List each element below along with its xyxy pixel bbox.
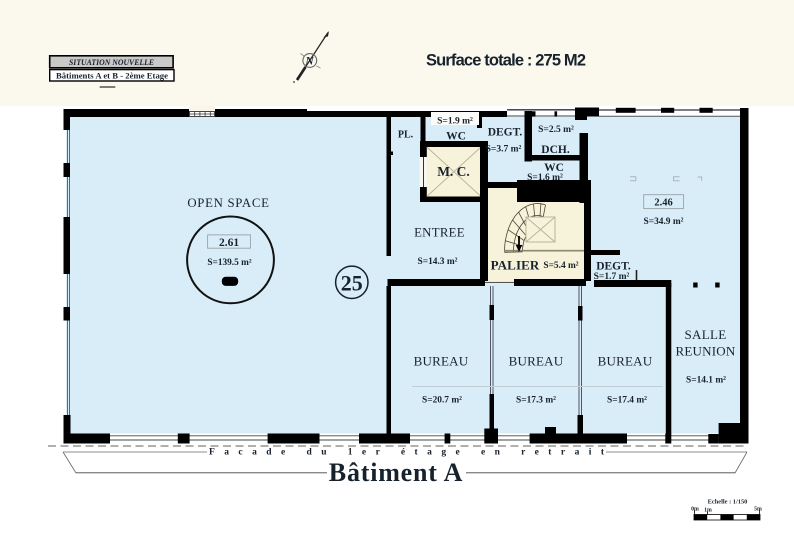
svg-text:BUREAU: BUREAU bbox=[509, 354, 564, 369]
svg-text:S=3.7 m²: S=3.7 m² bbox=[486, 145, 522, 155]
svg-text:S=1.7 m²: S=1.7 m² bbox=[594, 272, 630, 282]
svg-text:S=14.1 m²: S=14.1 m² bbox=[686, 375, 726, 385]
svg-text:SALLE: SALLE bbox=[685, 327, 727, 342]
svg-text:PALIER: PALIER bbox=[491, 258, 540, 273]
svg-text:WC: WC bbox=[446, 131, 466, 143]
svg-text:25: 25 bbox=[341, 270, 363, 295]
svg-text:PL.: PL. bbox=[398, 130, 414, 141]
svg-text:S=2.5 m²: S=2.5 m² bbox=[538, 125, 574, 135]
svg-text:0m: 0m bbox=[691, 507, 699, 513]
svg-text:Bâtiments A et B - 2ème Et: Bâtiments A et B - 2ème Etage bbox=[56, 71, 168, 81]
svg-text:S=1.9 m²: S=1.9 m² bbox=[437, 117, 473, 127]
svg-text:BUREAU: BUREAU bbox=[598, 354, 653, 369]
svg-text:Bâtiment A: Bâtiment A bbox=[329, 458, 463, 487]
svg-text:S=5.4 m²: S=5.4 m² bbox=[543, 261, 578, 271]
svg-text:2.46: 2.46 bbox=[654, 198, 672, 209]
svg-text:ENTREE: ENTREE bbox=[414, 226, 465, 240]
svg-text:OPEN SPACE: OPEN SPACE bbox=[187, 196, 269, 210]
svg-text:BUREAU: BUREAU bbox=[414, 354, 469, 369]
svg-text:REUNION: REUNION bbox=[676, 344, 736, 359]
svg-text:S=17.4 m²: S=17.4 m² bbox=[607, 396, 647, 406]
svg-text:2.61: 2.61 bbox=[219, 237, 239, 249]
svg-text:S=17.3 m²: S=17.3 m² bbox=[516, 396, 556, 406]
svg-text:S=14.3 m²: S=14.3 m² bbox=[418, 257, 458, 267]
svg-text:Surface totale : 275 M2: Surface totale : 275 M2 bbox=[426, 52, 586, 70]
svg-text:5m: 5m bbox=[754, 507, 762, 513]
svg-text:SITUATION NOUVELLE: SITUATION NOUVELLE bbox=[69, 57, 154, 67]
svg-text:DEGT.: DEGT. bbox=[596, 261, 631, 273]
svg-text:DCH.: DCH. bbox=[541, 144, 570, 156]
svg-text:S=20.7 m²: S=20.7 m² bbox=[422, 396, 462, 406]
svg-text:Echelle : 1/150: Echelle : 1/150 bbox=[708, 499, 748, 506]
svg-text:DEGT.: DEGT. bbox=[488, 127, 523, 139]
svg-text:1m: 1m bbox=[704, 508, 712, 514]
svg-text:M. C.: M. C. bbox=[437, 164, 470, 179]
svg-text:S=34.9 m²: S=34.9 m² bbox=[644, 217, 684, 227]
svg-text:S=139.5 m²: S=139.5 m² bbox=[207, 258, 251, 268]
svg-text:N: N bbox=[304, 56, 314, 68]
svg-text:S=1.6 m²: S=1.6 m² bbox=[527, 173, 563, 183]
